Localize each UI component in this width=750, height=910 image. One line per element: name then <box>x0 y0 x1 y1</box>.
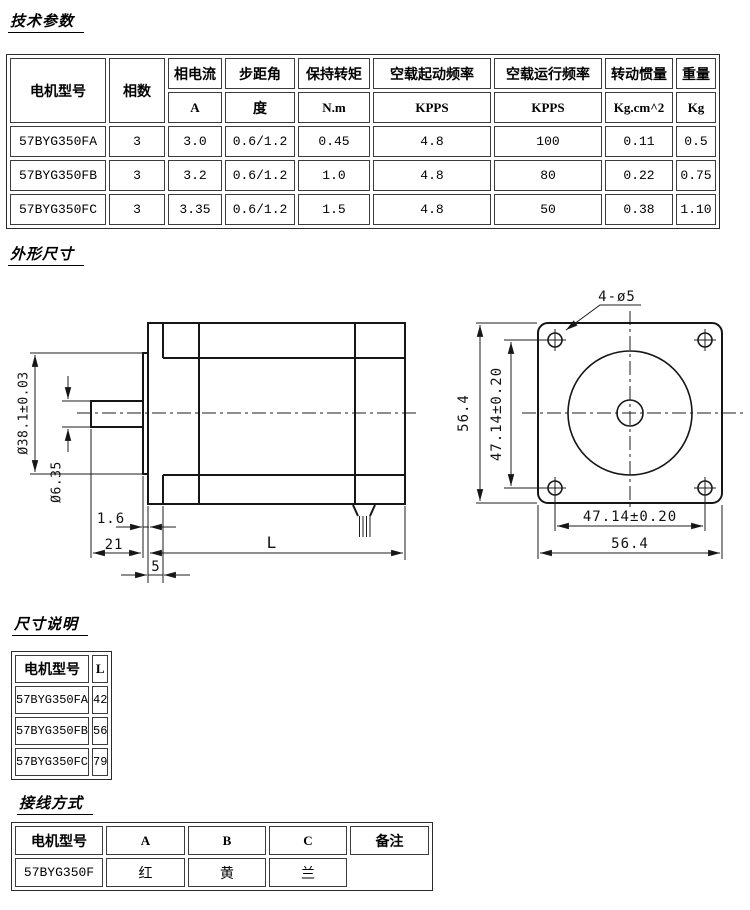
spec-cell: 3 <box>109 160 165 191</box>
spec-unit-kg: Kg <box>676 92 716 123</box>
dim-row: 57BYG350FA 42 <box>15 686 108 714</box>
datasheet-page: { "titles": { "tech_params": "技术参数", "ou… <box>0 0 750 910</box>
spec-cell: 57BYG350FB <box>10 160 106 191</box>
wiring-table: 电机型号 A B C 备注 57BYG350F 红 黄 兰 <box>11 822 433 891</box>
dim-row: 57BYG350FB 56 <box>15 717 108 745</box>
spec-unit-amps: A <box>168 92 222 123</box>
motor-shaft <box>91 401 143 427</box>
spec-unit-kpps-run: KPPS <box>494 92 602 123</box>
front-view: 4-ø5 56.4 47.14±0.20 47.14±0.20 56.4 <box>456 289 747 559</box>
spec-cell: 4.8 <box>373 194 491 225</box>
spec-header-phases: 相数 <box>109 58 165 123</box>
spec-cell: 57BYG350FA <box>10 126 106 157</box>
spec-unit-nm: N.m <box>298 92 370 123</box>
spec-cell: 0.22 <box>605 160 673 191</box>
dim-label-frame-width: 56.4 <box>611 536 649 552</box>
dim-label-shaft-diameter: Ø6.35 <box>50 461 65 503</box>
dim-header-model: 电机型号 <box>15 655 89 683</box>
spec-cell: 3 <box>109 194 165 225</box>
outline-dimension-drawing: Ø38.1±0.03 Ø6.35 1.6 21 5 L <box>0 270 750 600</box>
spec-cell: 4.8 <box>373 126 491 157</box>
wiring-cell: 57BYG350F <box>15 858 103 887</box>
spec-cell: 1.10 <box>676 194 716 225</box>
spec-header-phase-current: 相电流 <box>168 58 222 89</box>
spec-header-noload-start-freq: 空载起动频率 <box>373 58 491 89</box>
spec-cell: 3.2 <box>168 160 222 191</box>
wiring-header-c: C <box>269 826 347 855</box>
wiring-cell-remarks <box>350 858 429 887</box>
wiring-header-a: A <box>106 826 185 855</box>
spec-cell: 0.5 <box>676 126 716 157</box>
spec-row: 57BYG350FB 3 3.2 0.6/1.2 1.0 4.8 80 0.22… <box>10 160 716 191</box>
wiring-row: 57BYG350F 红 黄 兰 <box>15 858 429 887</box>
spec-cell: 3.35 <box>168 194 222 225</box>
spec-cell: 0.75 <box>676 160 716 191</box>
side-view: Ø38.1±0.03 Ø6.35 1.6 21 5 L <box>17 323 418 583</box>
wiring-cell-phase-b-color: 黄 <box>188 858 266 887</box>
dim-cell: 57BYG350FA <box>15 686 89 714</box>
spec-cell: 0.6/1.2 <box>225 126 295 157</box>
spec-cell: 0.45 <box>298 126 370 157</box>
dim-cell: 57BYG350FC <box>15 748 89 776</box>
dim-label-pilot-depth: 5 <box>151 559 160 575</box>
spec-header-step-angle: 步距角 <box>225 58 295 89</box>
dim-label-shaft-length: 21 <box>105 537 124 553</box>
wiring-cell-phase-a-color: 红 <box>106 858 185 887</box>
dim-cell: 56 <box>92 717 108 745</box>
spec-header-weight: 重量 <box>676 58 716 89</box>
dim-cell: 42 <box>92 686 108 714</box>
dim-label-frame-height: 56.4 <box>456 394 472 432</box>
dim-header-length: L <box>92 655 108 683</box>
wiring-header-b: B <box>188 826 266 855</box>
spec-cell: 4.8 <box>373 160 491 191</box>
spec-cell: 0.6/1.2 <box>225 160 295 191</box>
spec-cell: 57BYG350FC <box>10 194 106 225</box>
spec-unit-degree: 度 <box>225 92 295 123</box>
spec-cell: 0.11 <box>605 126 673 157</box>
spec-header-noload-run-freq: 空载运行频率 <box>494 58 602 89</box>
dim-cell: 57BYG350FB <box>15 717 89 745</box>
spec-cell: 50 <box>494 194 602 225</box>
dim-label-mount-holes: 4-ø5 <box>598 289 636 305</box>
spec-header-model: 电机型号 <box>10 58 106 123</box>
spec-cell: 0.6/1.2 <box>225 194 295 225</box>
spec-unit-kpps-start: KPPS <box>373 92 491 123</box>
wiring-cell-phase-c-color: 兰 <box>269 858 347 887</box>
dim-label-boss-diameter: Ø38.1±0.03 <box>17 371 32 454</box>
section-title-outline-dimensions: 外形尺寸 <box>8 243 84 266</box>
spec-unit-kgcm2: Kg.cm^2 <box>605 92 673 123</box>
spec-cell: 1.0 <box>298 160 370 191</box>
spec-cell: 3 <box>109 126 165 157</box>
spec-row: 57BYG350FC 3 3.35 0.6/1.2 1.5 4.8 50 0.3… <box>10 194 716 225</box>
spec-cell: 3.0 <box>168 126 222 157</box>
dim-cell: 79 <box>92 748 108 776</box>
wiring-header-model: 电机型号 <box>15 826 103 855</box>
dim-row: 57BYG350FC 79 <box>15 748 108 776</box>
spec-row: 57BYG350FA 3 3.0 0.6/1.2 0.45 4.8 100 0.… <box>10 126 716 157</box>
dim-label-hole-spacing-vertical: 47.14±0.20 <box>489 367 505 461</box>
spec-cell: 80 <box>494 160 602 191</box>
spec-cell: 0.38 <box>605 194 673 225</box>
spec-header-rotor-inertia: 转动惯量 <box>605 58 673 89</box>
dimension-note-table: 电机型号 L 57BYG350FA 42 57BYG350FB 56 57BYG… <box>11 651 112 780</box>
section-title-wiring-method: 接线方式 <box>17 792 93 815</box>
spec-cell: 1.5 <box>298 194 370 225</box>
lead-wires <box>353 505 375 537</box>
wiring-header-remarks: 备注 <box>350 826 429 855</box>
spec-table: 电机型号 相数 相电流 步距角 保持转矩 空载起动频率 空载运行频率 转动惯量 … <box>6 54 720 229</box>
dim-label-hole-spacing-horizontal: 47.14±0.20 <box>583 509 677 525</box>
dim-label-body-length: L <box>267 533 278 552</box>
spec-cell: 100 <box>494 126 602 157</box>
dim-label-flange-thickness: 1.6 <box>97 511 125 527</box>
section-title-dimension-note: 尺寸说明 <box>12 613 88 636</box>
spec-header-holding-torque: 保持转矩 <box>298 58 370 89</box>
section-title-tech-params: 技术参数 <box>8 10 84 33</box>
